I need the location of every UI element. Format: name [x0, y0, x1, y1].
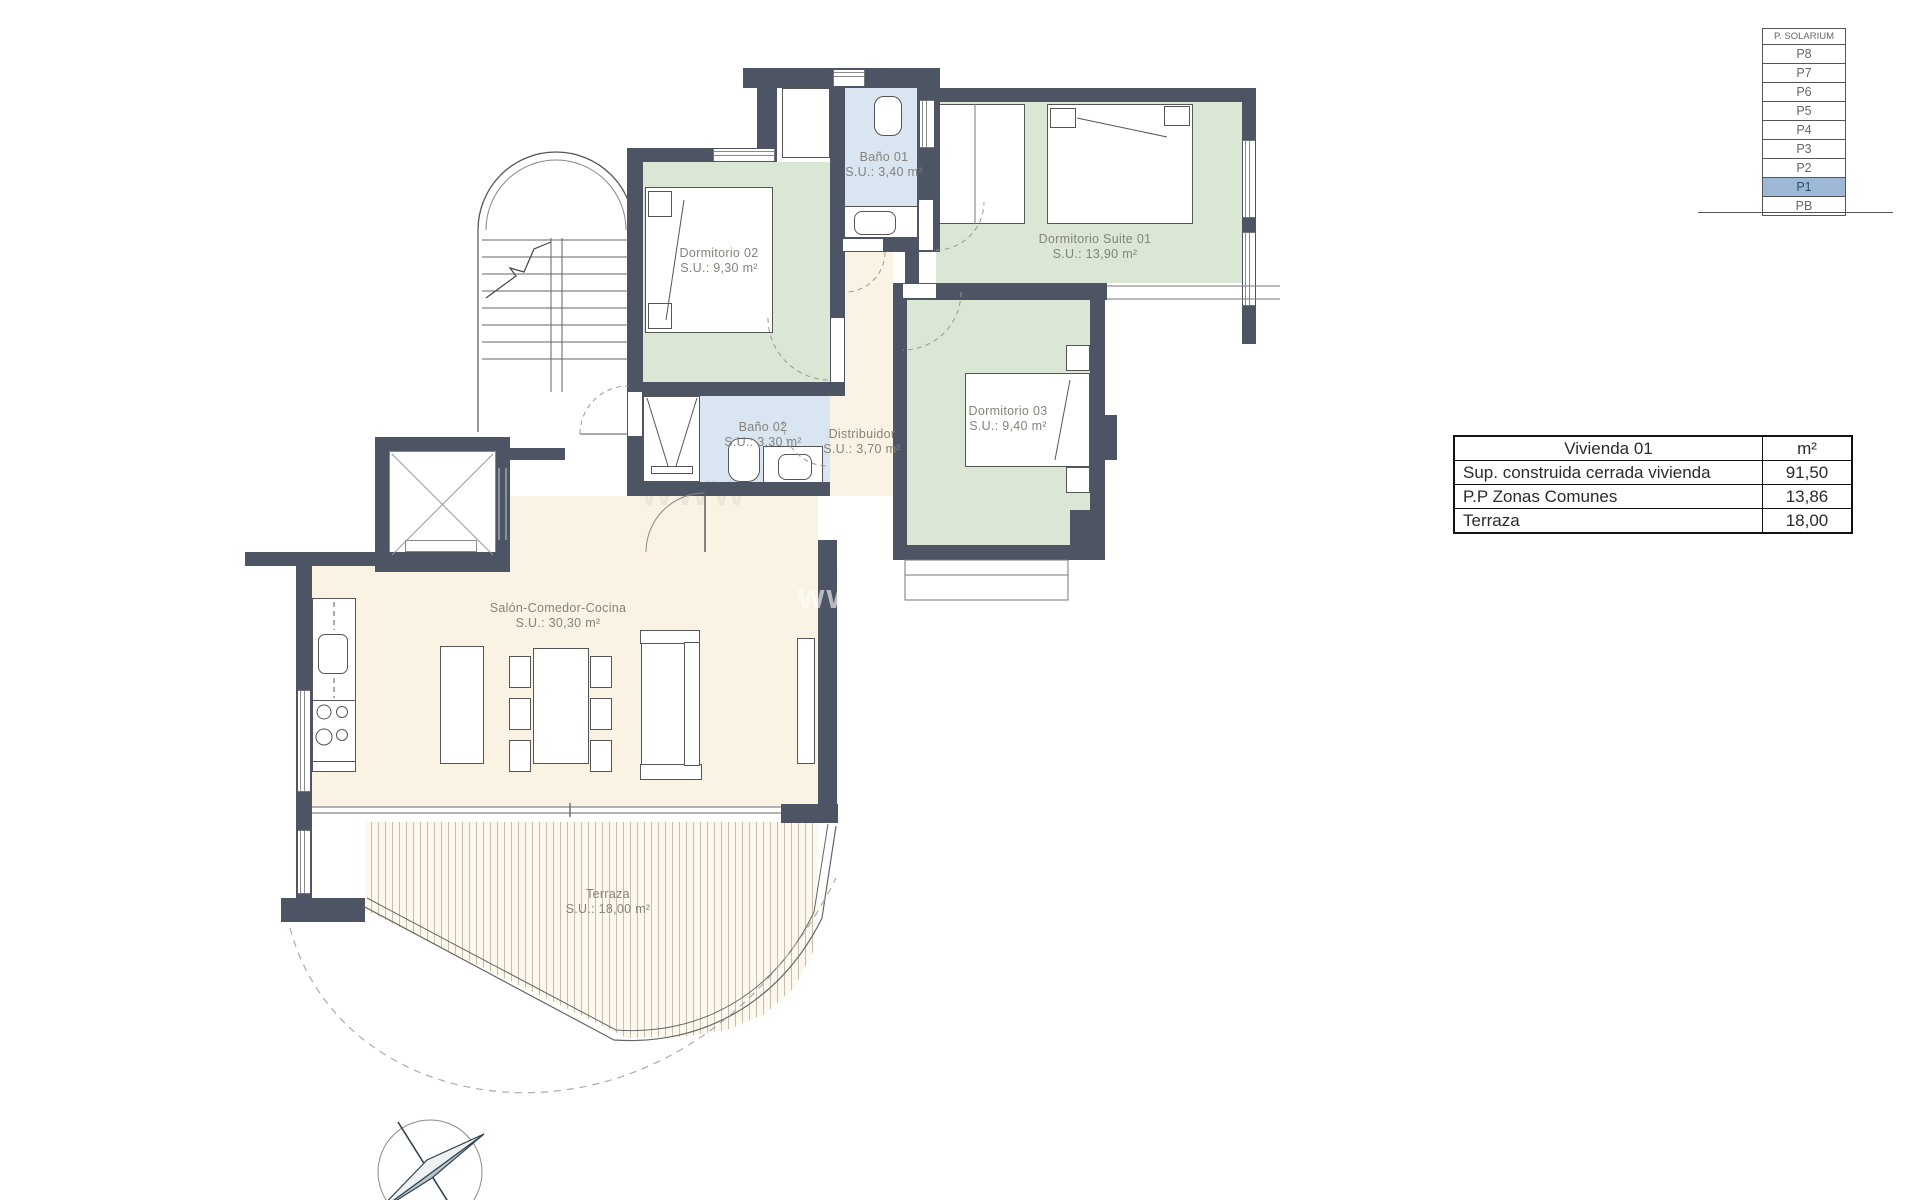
wall-pillar: [1070, 510, 1105, 560]
sofa-armrest: [640, 764, 702, 780]
pillow: [1050, 108, 1076, 128]
table-row: P.P Zonas Comunes 13,86: [1454, 485, 1852, 509]
floor-row-p5[interactable]: P5: [1763, 102, 1845, 121]
window: [298, 830, 310, 894]
floor-row-p8[interactable]: P8: [1763, 45, 1845, 64]
toilet: [874, 96, 902, 136]
door-opening: [843, 239, 883, 251]
area-row-value: 13,86: [1763, 485, 1853, 509]
floor-row-p4[interactable]: P4: [1763, 121, 1845, 140]
ground-line: [1698, 212, 1893, 213]
wall-segment: [627, 482, 830, 496]
room-label-dormitorio-02: Dormitorio 02S.U.: 9,30 m²: [619, 246, 819, 276]
window: [920, 100, 934, 148]
elevator-wall: [496, 437, 510, 572]
floor-row-p1-selected[interactable]: P1: [1763, 178, 1845, 197]
wall-segment: [926, 88, 1256, 102]
door-opening: [919, 200, 933, 250]
elevator-wall: [375, 437, 510, 451]
elevator-wall: [375, 437, 389, 572]
washbasin: [778, 454, 812, 480]
wall-segment: [781, 804, 838, 823]
tv-unit: [797, 638, 815, 764]
watermark: www: [798, 578, 883, 617]
terrace-decking: [365, 822, 818, 1038]
window: [298, 690, 310, 792]
wall-segment: [281, 898, 365, 922]
window: [833, 70, 865, 86]
wall-segment: [893, 299, 907, 545]
chair: [590, 656, 612, 688]
floor-row-p2[interactable]: P2: [1763, 159, 1845, 178]
door-opening: [831, 318, 844, 382]
area-row-label: Sup. construida cerrada vivienda: [1454, 461, 1763, 485]
area-row-label: Terraza: [1454, 509, 1763, 534]
area-table: Vivienda 01 m² Sup. construida cerrada v…: [1453, 435, 1853, 534]
pillow: [1164, 106, 1190, 126]
floor-row-p6[interactable]: P6: [1763, 83, 1845, 102]
area-row-value: 91,50: [1763, 461, 1853, 485]
area-table-title: Vivienda 01: [1454, 436, 1763, 461]
area-row-value: 18,00: [1763, 509, 1853, 534]
chair: [509, 698, 531, 730]
shower-base-line: [651, 466, 693, 474]
closet: [782, 88, 830, 158]
chair: [509, 656, 531, 688]
pillow: [648, 191, 672, 217]
floor-selector-title: P. SOLARIUM: [1763, 29, 1845, 45]
elevator-wall: [510, 448, 565, 460]
nightstand: [1066, 345, 1090, 371]
window: [1243, 232, 1255, 306]
chair: [509, 740, 531, 772]
sofa-seat: [641, 643, 685, 765]
wall-segment: [627, 382, 845, 396]
kitchen-island: [440, 646, 484, 764]
area-row-label: P.P Zonas Comunes: [1454, 485, 1763, 509]
floor-selector: P. SOLARIUM P8 P7 P6 P5 P4 P3 P2 P1 PB: [1762, 28, 1846, 216]
room-label-terraza: TerrazaS.U.: 18,00 m²: [508, 887, 708, 917]
elevator-panel: [405, 540, 477, 552]
wall-segment: [905, 252, 919, 283]
compass-icon: [375, 1120, 484, 1200]
door-opening: [628, 392, 642, 436]
elevator-wall: [375, 558, 510, 572]
washbasin: [854, 211, 896, 235]
pillow: [648, 303, 672, 329]
floor-row-p7[interactable]: P7: [1763, 64, 1845, 83]
floor-row-p3[interactable]: P3: [1763, 140, 1845, 159]
cooktop: [312, 700, 356, 762]
area-table-unit: m²: [1763, 436, 1853, 461]
window: [1243, 140, 1255, 218]
room-label-dormitorio-03: Dormitorio 03S.U.: 9,40 m²: [908, 404, 1108, 434]
room-fill-pasillo: [845, 252, 893, 396]
sofa-backrest: [684, 642, 700, 766]
kitchen-sink: [318, 634, 348, 674]
room-label-salon: Salón-Comedor-CocinaS.U.: 30,30 m²: [458, 601, 658, 631]
door-opening: [903, 284, 936, 298]
floor-row-pb[interactable]: PB: [1763, 197, 1845, 216]
window: [713, 149, 775, 161]
table-row: Terraza 18,00: [1454, 509, 1852, 534]
table-row: Sup. construida cerrada vivienda 91,50: [1454, 461, 1852, 485]
room-label-suite-01: Dormitorio Suite 01S.U.: 13,90 m²: [995, 232, 1195, 262]
nightstand: [1066, 467, 1090, 493]
dining-table: [533, 648, 589, 764]
chair: [590, 698, 612, 730]
chair: [590, 740, 612, 772]
floorplan-sheet: Dormitorio 02S.U.: 9,30 m² Baño 01S.U.: …: [0, 0, 1920, 1200]
room-label-bano-01: Baño 01S.U.: 3,40 m²: [784, 150, 984, 180]
